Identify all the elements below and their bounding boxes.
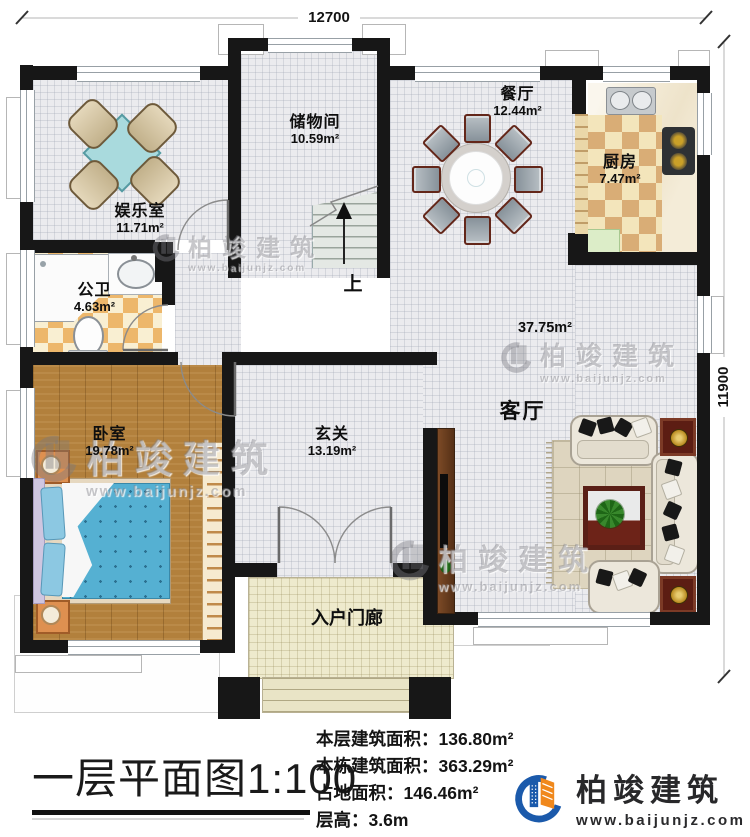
wall [572,80,586,114]
room-name: 餐厅 [465,86,570,104]
plan-title: 一层平面图1:100 [32,745,357,806]
pillow [40,542,66,596]
shower-head [40,261,46,267]
side-table-medallion [670,429,688,447]
info-label: 本层建筑面积： [316,729,439,749]
window [77,66,200,82]
window-sill [15,655,142,673]
room-name: 厨房 [560,154,680,172]
wardrobe-hangers [207,447,222,643]
room-area: 4.63m² [42,300,147,315]
info-label: 占地面积： [316,783,404,803]
burner [670,132,687,149]
window [603,66,670,82]
wall [20,352,178,365]
room-name: 娱乐室 [85,203,195,221]
room-area: 10.59m² [255,132,375,147]
dimension-tick [718,35,730,48]
sink-basin [610,91,630,110]
title-block: 一层平面图1:100 [32,745,357,820]
dimension-tick [16,11,28,24]
chair [464,216,491,245]
window-sill [710,296,724,354]
window [268,38,352,53]
wall [423,428,437,612]
company-logo-icon [512,765,566,829]
room-label-bedroom: 卧室 19.78m² [52,426,167,459]
area-info-block: 本层建筑面积：136.80m² 本栋建筑面积：363.29m² 占地面积：146… [316,726,513,834]
room-area: 13.19m² [272,444,392,459]
room-label-kitchen: 厨房 7.47m² [560,154,680,187]
wall [20,240,155,253]
window [415,66,540,82]
plant-small [440,560,451,573]
stairs-up-label: 上 [341,274,365,296]
chair [514,166,543,193]
room-label-bathroom: 公卫 4.63m² [42,282,147,315]
window [478,612,650,627]
wall [235,352,437,365]
room-area-living: 37.75m² [500,320,590,337]
room-area: 11.71m² [85,221,195,236]
room-label-dining: 餐厅 12.44m² [465,86,570,119]
floor-plan-page: 柏竣建筑 www.baijunjz.com 柏竣建筑 www.baijunjz.… [0,0,750,837]
window [20,388,35,478]
plant [596,500,624,528]
company-logo-block: 柏竣建筑 www.baijunjz.com [512,765,745,829]
window [20,250,35,347]
wall [222,352,235,653]
company-name: 柏竣建筑 [576,765,745,810]
wall [228,38,241,278]
title-underline [32,810,310,815]
wall [568,252,710,265]
info-value: 3.6m [369,810,409,830]
porch-pillar [218,677,260,719]
wall [235,563,277,577]
chair [412,166,441,193]
room-name: 公卫 [42,282,147,300]
info-row: 占地面积：146.46m² [316,780,513,807]
room-label-entertainment: 娱乐室 11.71m² [85,203,195,236]
sink-basin [632,91,652,110]
window [20,90,35,202]
title-underline-shadow [32,818,304,820]
window-sill [473,627,608,645]
faucet [131,255,137,261]
side-table-medallion [670,586,688,604]
porch-pillar [409,677,451,719]
info-row: 本层建筑面积：136.80m² [316,726,513,753]
info-label: 本栋建筑面积： [316,756,439,776]
dimension-tick [718,670,730,683]
room-label-porch: 入户门廊 [287,608,407,629]
wall [162,253,175,305]
room-name: 储物间 [255,114,375,132]
pillow [40,486,66,540]
room-name: 玄关 [272,426,392,444]
dimension-label-right: 11900 [715,357,733,417]
info-value: 136.80m² [439,729,514,749]
dimension-label-top: 12700 [298,9,360,26]
info-row: 本栋建筑面积：363.29m² [316,753,513,780]
dining-table-center [467,169,485,187]
room-area: 7.47m² [560,172,680,187]
room-label-living: 客厅 [485,400,560,424]
room-name: 卧室 [52,426,167,444]
floor-foyer [235,365,423,577]
room-area: 19.78m² [52,444,167,459]
lamp [41,605,61,625]
wall [377,38,390,278]
info-label: 层高： [316,810,369,830]
company-website: www.baijunjz.com [576,812,745,829]
room-area: 12.44m² [465,104,570,119]
dimension-tick [700,11,712,24]
tv [440,474,448,548]
info-value: 363.29m² [439,756,514,776]
window [68,640,200,655]
info-value: 146.46m² [404,783,479,803]
sofa-seat [577,440,649,459]
rug-fringe [546,442,552,585]
window [697,93,712,155]
window [697,296,712,353]
info-row: 层高：3.6m [316,807,513,834]
room-label-storage: 储物间 10.59m² [255,114,375,147]
room-label-foyer: 玄关 13.19m² [272,426,392,459]
